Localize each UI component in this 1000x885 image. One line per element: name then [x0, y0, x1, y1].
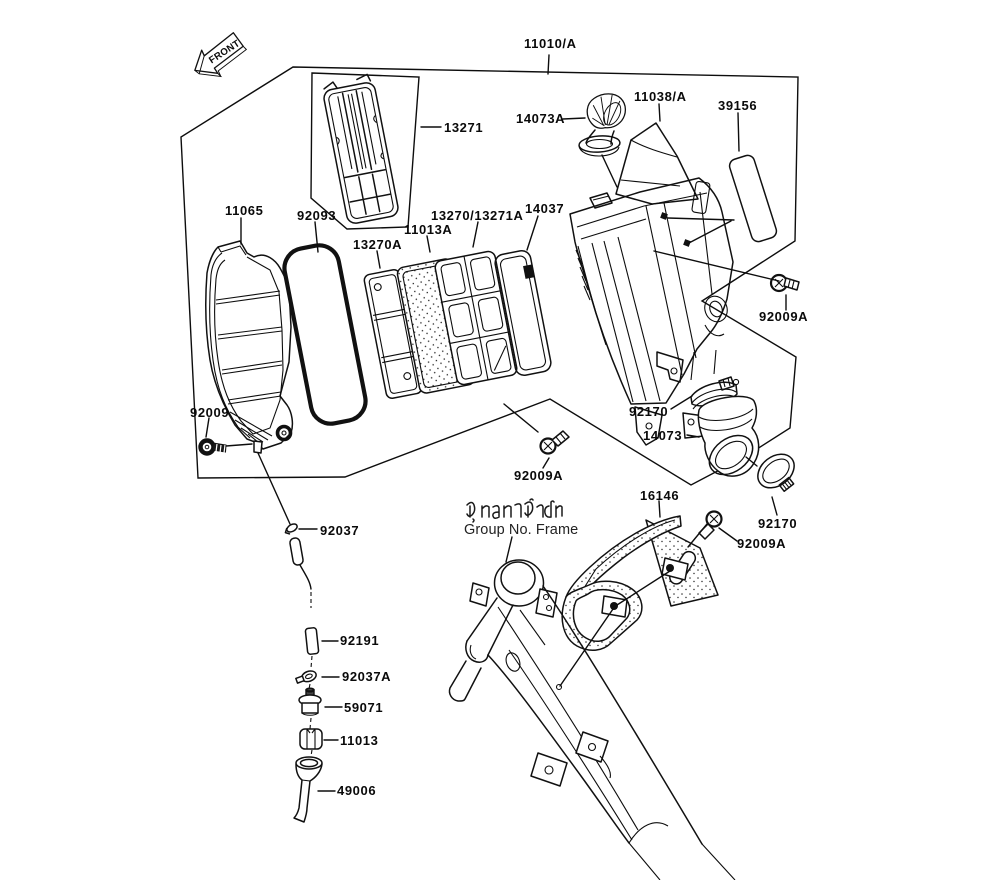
svg-text:16146: 16146 — [640, 488, 679, 503]
svg-text:11010/A: 11010/A — [524, 36, 577, 51]
svg-text:11013A: 11013A — [404, 222, 452, 237]
svg-text:92170: 92170 — [758, 516, 797, 531]
svg-text:92009A: 92009A — [514, 468, 563, 483]
svg-text:92191: 92191 — [340, 633, 379, 648]
svg-text:11013: 11013 — [340, 733, 378, 748]
svg-text:92093: 92093 — [297, 208, 336, 223]
svg-text:92170: 92170 — [629, 404, 668, 419]
svg-text:11065: 11065 — [225, 203, 263, 218]
svg-text:Group No. Frame: Group No. Frame — [464, 522, 578, 538]
svg-text:39156: 39156 — [718, 98, 757, 113]
svg-text:92037A: 92037A — [342, 669, 391, 684]
svg-text:92009: 92009 — [190, 405, 229, 420]
svg-text:11038/A: 11038/A — [634, 89, 687, 104]
svg-text:92037: 92037 — [320, 523, 359, 538]
svg-text:13271: 13271 — [444, 120, 483, 135]
svg-text:92009A: 92009A — [759, 309, 808, 324]
svg-text:14073: 14073 — [643, 428, 682, 443]
svg-text:92009A: 92009A — [737, 536, 786, 551]
svg-text:49006: 49006 — [337, 783, 376, 798]
svg-text:59071: 59071 — [344, 700, 383, 715]
svg-text:14073A: 14073A — [516, 111, 565, 126]
svg-text:13270/13271A: 13270/13271A — [431, 208, 524, 223]
svg-text:13270A: 13270A — [353, 237, 402, 252]
svg-text:14037: 14037 — [525, 201, 564, 216]
